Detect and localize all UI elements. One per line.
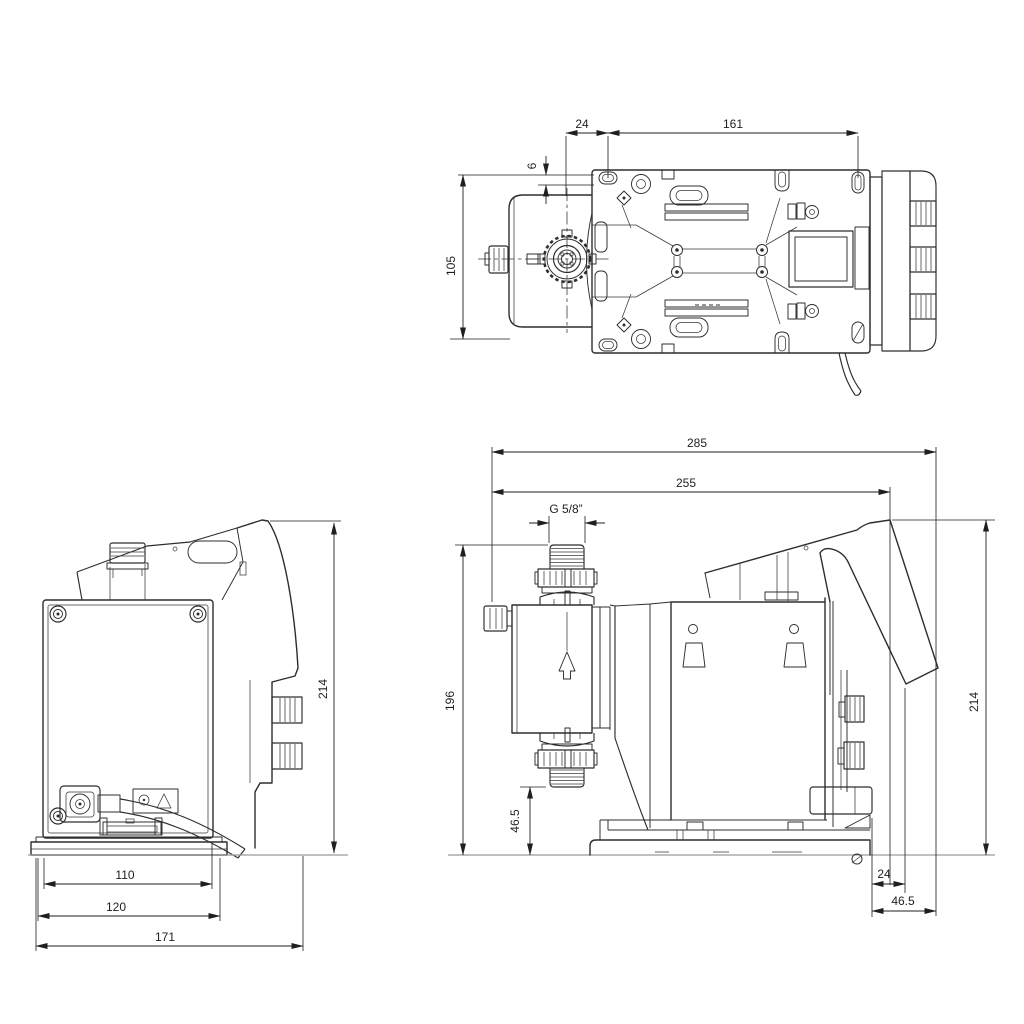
connection-knob	[845, 696, 864, 722]
back-panel	[43, 600, 213, 838]
dim-label-171: 171	[155, 930, 175, 944]
adjustment-dial	[527, 230, 596, 288]
dim-label-255: 255	[676, 476, 696, 490]
rear-view-dimensions: 214 110 120 171	[36, 521, 341, 951]
dim-label-214-rear: 214	[316, 679, 330, 699]
power-cable-top	[839, 353, 861, 395]
dim-label-120: 120	[106, 900, 126, 914]
dim-label-214-side: 214	[967, 692, 981, 712]
vent-valve-knob	[484, 606, 512, 631]
dosing-head	[484, 545, 610, 787]
wall-bracket	[810, 787, 872, 864]
dim-label-thread: G 5/8”	[549, 502, 582, 516]
dim-label-24-top: 24	[575, 117, 589, 131]
dimensional-drawing-page: 24 161 6 105	[0, 0, 1024, 1024]
mounting-hook	[683, 643, 705, 667]
side-view: 285 255 G 5/8” 196 46.5 214 24 46.5	[443, 436, 995, 917]
dim-label-110: 110	[115, 868, 134, 882]
dim-label-285: 285	[687, 436, 707, 450]
pump-body-side	[610, 592, 847, 830]
control-panel-rear	[222, 520, 302, 848]
connection-knob	[910, 201, 936, 226]
mounting-hole-bl	[599, 339, 617, 351]
connection-knob	[272, 697, 302, 723]
dim-label-6: 6	[525, 162, 539, 169]
corner-screw	[50, 606, 66, 622]
top-cover-rear	[77, 528, 237, 600]
control-unit-top	[870, 171, 936, 351]
mounting-plate	[592, 170, 870, 353]
base-plate-side	[590, 820, 870, 855]
connection-knob	[910, 247, 936, 272]
mounting-hook	[784, 643, 806, 667]
side-view-dimensions: 285 255 G 5/8” 196 46.5 214 24 46.5	[443, 436, 995, 917]
corner-screw	[190, 606, 206, 622]
dim-label-46-5-side: 46.5	[508, 809, 522, 833]
connection-knob	[910, 294, 936, 319]
pump-head-top	[509, 195, 592, 327]
vent-valve-knob-top	[485, 246, 508, 273]
connection-knob	[272, 743, 302, 769]
control-panel-side	[705, 520, 938, 769]
pump-dimensional-drawing: 24 161 6 105	[0, 0, 1024, 1024]
dim-label-46-5-bottom: 46.5	[891, 894, 915, 908]
base-plate-rear	[31, 837, 227, 855]
flow-direction-arrow	[559, 612, 575, 679]
suction-connection	[535, 728, 597, 787]
top-view: 24 161 6 105	[444, 117, 936, 395]
dim-label-24-side: 24	[877, 867, 891, 881]
cable-gland	[60, 786, 120, 822]
discharge-connection	[535, 545, 597, 605]
warning-label	[133, 789, 178, 813]
rear-view: 214 110 120 171	[28, 520, 348, 951]
dim-label-161: 161	[723, 117, 743, 131]
dim-label-105: 105	[444, 256, 458, 276]
mounting-rail	[100, 818, 162, 835]
dim-label-196: 196	[443, 691, 457, 711]
